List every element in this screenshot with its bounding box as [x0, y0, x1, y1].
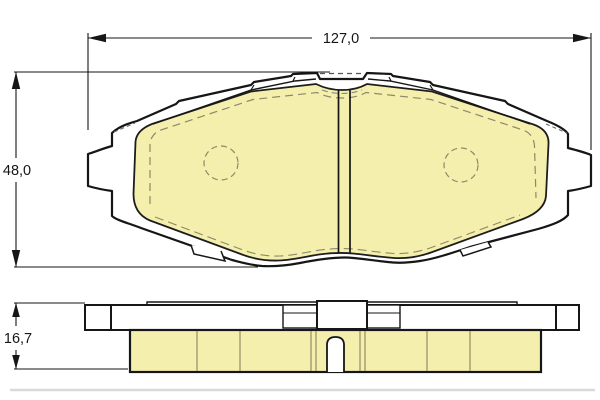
arrowhead-up	[12, 303, 20, 317]
arrowhead-left	[88, 34, 106, 42]
thickness-dimension-label: 16,7	[4, 331, 32, 347]
height-dimension-label: 48,0	[3, 163, 31, 179]
friction-center-notch-fill	[327, 337, 344, 372]
side-ear-right	[556, 305, 579, 330]
drawing-canvas: 127,0 48,0 16,7	[0, 0, 600, 400]
width-dimension-label: 127,0	[323, 31, 359, 47]
arrowhead-down	[12, 355, 20, 369]
arrowhead-right	[573, 34, 591, 42]
side-view	[10, 301, 595, 390]
arrowhead-down	[12, 250, 20, 267]
arrowhead-up	[12, 72, 20, 89]
side-ear-left	[85, 305, 111, 330]
side-recess-left	[283, 305, 317, 328]
side-center-block	[317, 301, 367, 329]
side-recess-right	[367, 305, 400, 328]
brake-pad-diagram: 127,0 48,0 16,7	[0, 0, 600, 400]
front-view	[88, 73, 591, 266]
